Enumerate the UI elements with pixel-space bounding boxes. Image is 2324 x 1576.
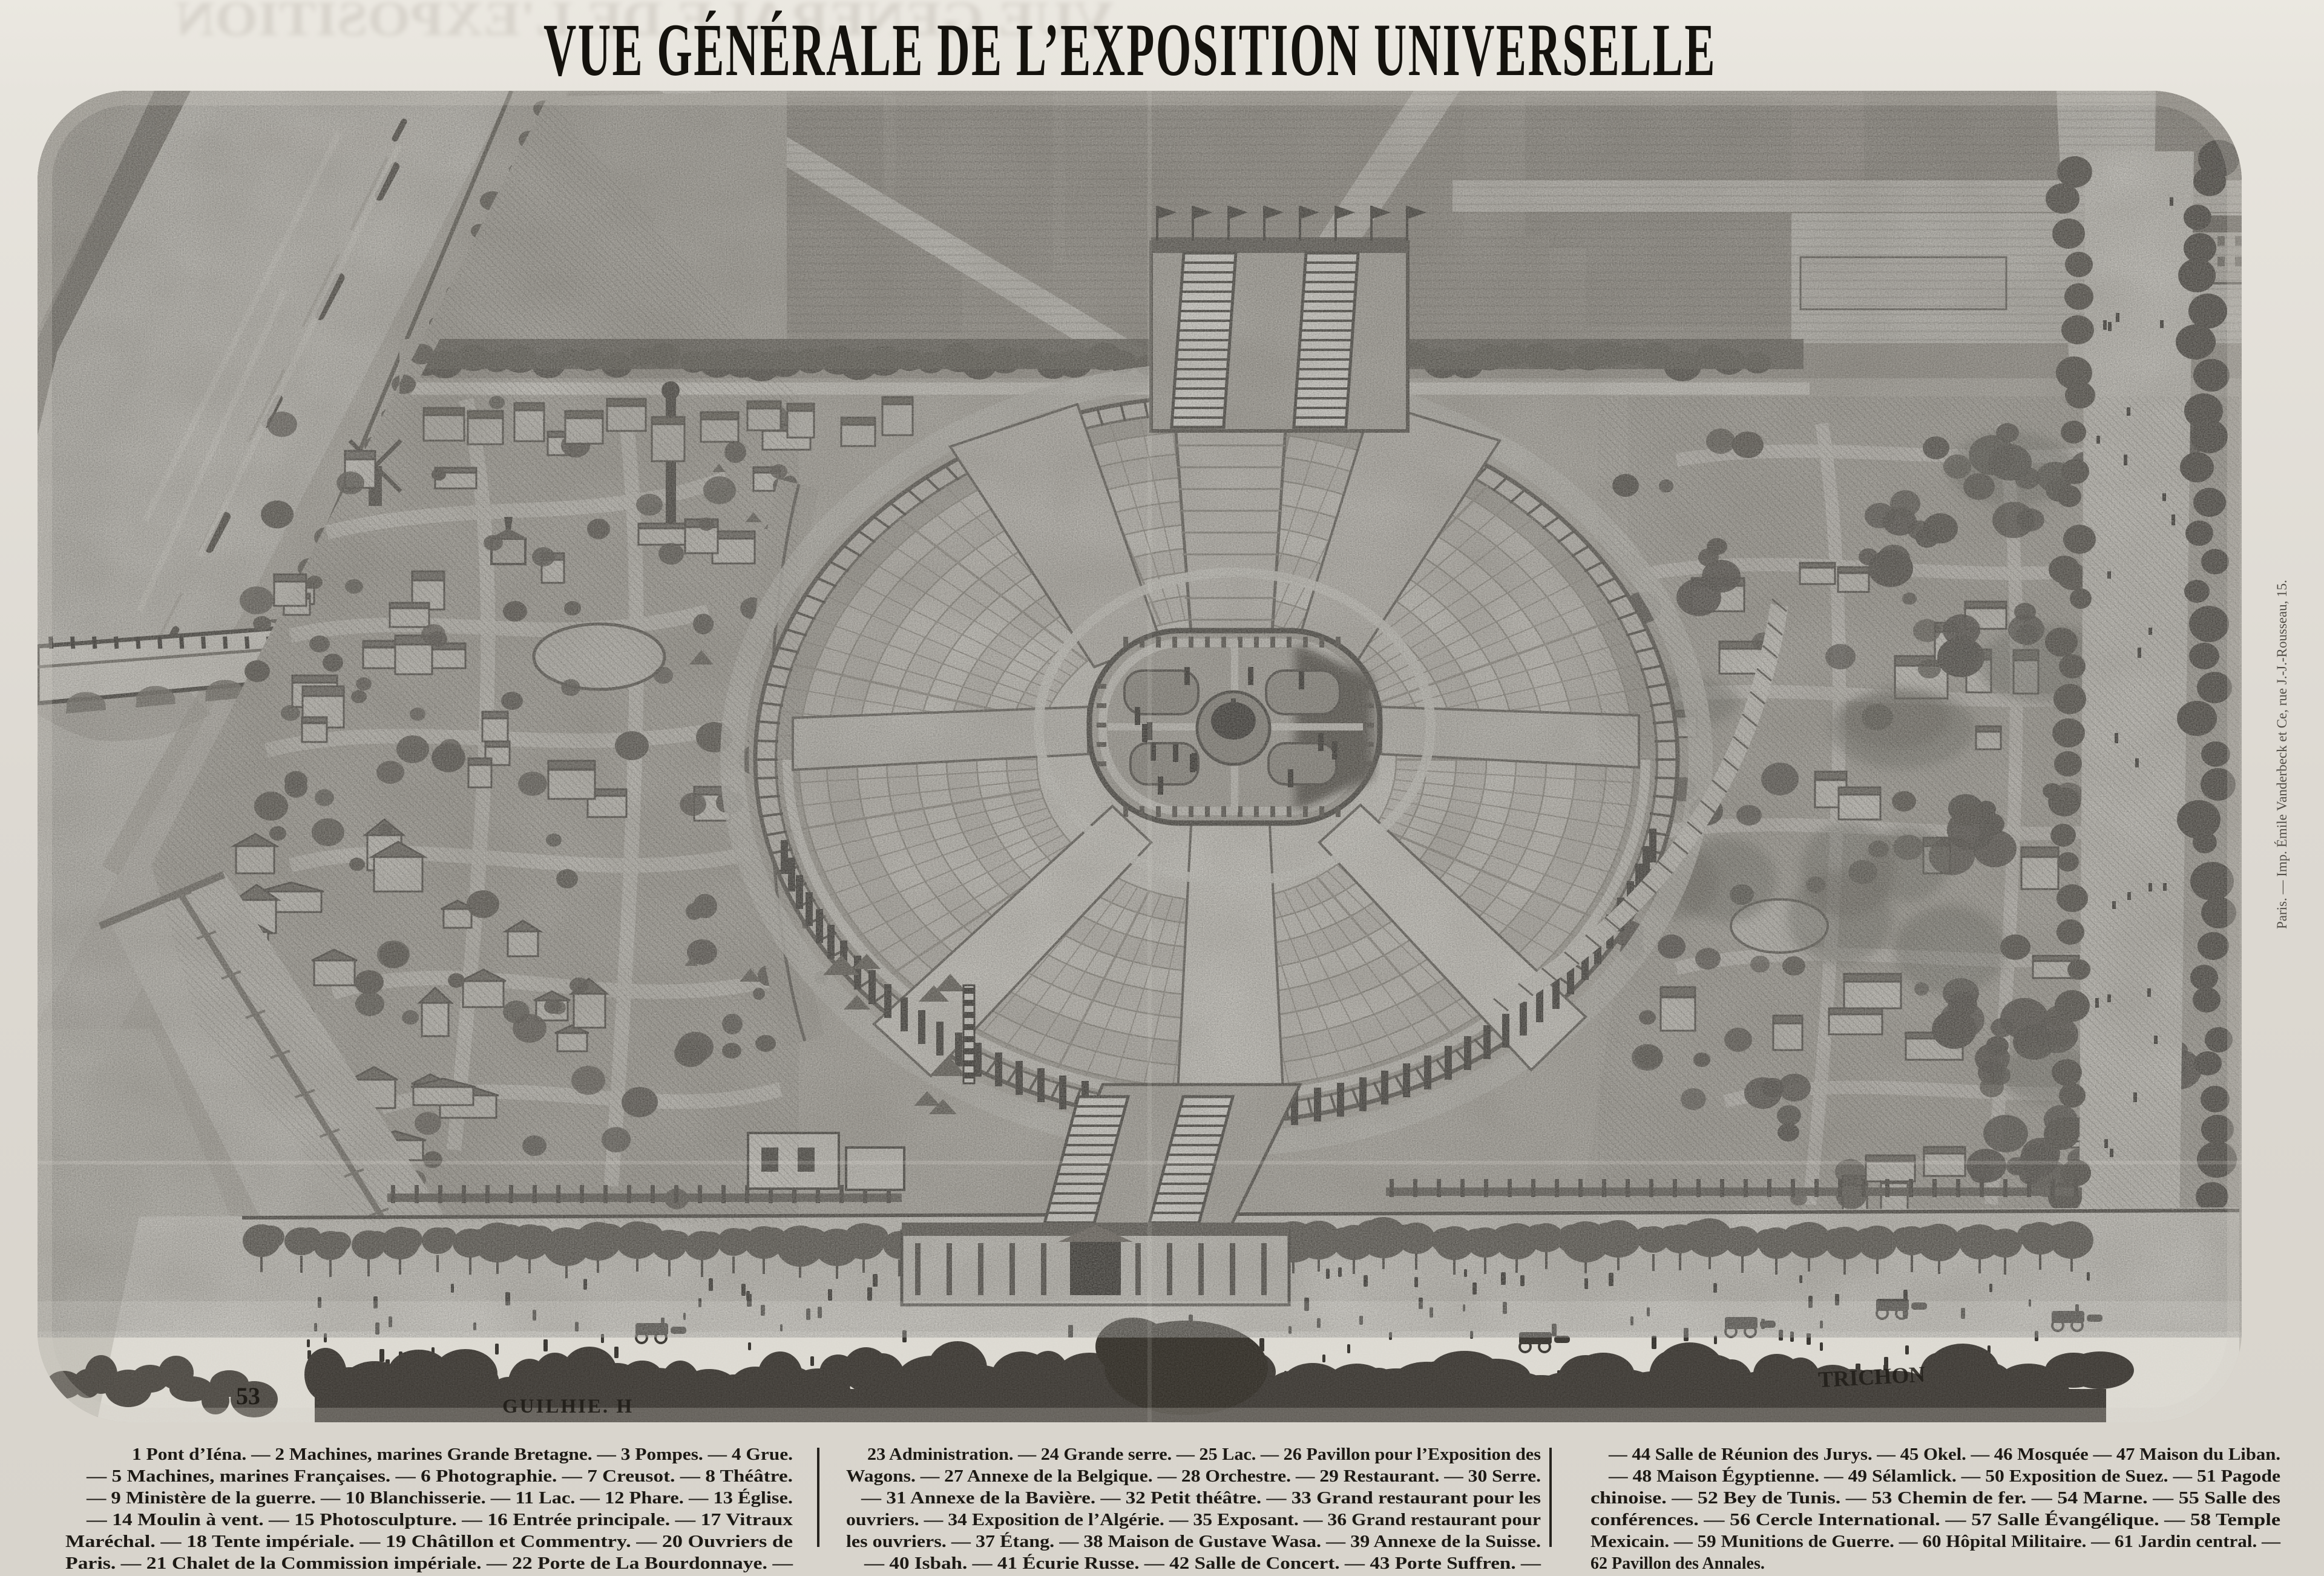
svg-text:— 40 Isbah. — 41 Écurie Ru: — 40 Isbah. — 41 Écurie Russe. — 42 Sall… — [864, 1554, 1541, 1573]
svg-text:Mexicain. — 59 Munitions de: Mexicain. — 59 Munitions de Guerre. — 60… — [1590, 1532, 2281, 1551]
svg-text:ouvriers. — 34 Exposition de: ouvriers. — 34 Exposition de l’Algérie. … — [846, 1511, 1541, 1529]
svg-text:62 Pavillon des Annales.: 62 Pavillon des Annales. — [1590, 1554, 1765, 1573]
svg-text:53: 53 — [236, 1382, 260, 1410]
svg-text:— 9 Ministère de la guerre.: — 9 Ministère de la guerre. — 10 Blanchi… — [86, 1489, 793, 1508]
svg-text:— 14 Moulin à vent. — 15 Pho: — 14 Moulin à vent. — 15 Photosculpture.… — [86, 1511, 793, 1529]
svg-text:les ouvriers. — 37 Étang. —: les ouvriers. — 37 Étang. — 38 Maison de… — [846, 1532, 1541, 1551]
svg-text:Paris. — Imp. Émile Vanderbeck: Paris. — Imp. Émile Vanderbeck et Ce, ru… — [2274, 580, 2290, 929]
svg-text:— 31 Annexe de la Bavière. —: — 31 Annexe de la Bavière. — 32 Petit th… — [861, 1489, 1541, 1508]
svg-text:conférences. — 56 Cercle Int: conférences. — 56 Cercle International. … — [1590, 1511, 2280, 1529]
svg-text:— 44 Salle de Réunion des Ju: — 44 Salle de Réunion des Jurys. — 45 Ok… — [1608, 1445, 2280, 1464]
svg-text:— 48 Maison Égyptienne. — 4: — 48 Maison Égyptienne. — 49 Sélamlick. … — [1608, 1467, 2280, 1486]
svg-text:VUE GÉNÉRALE DE L’EXPOSITION U: VUE GÉNÉRALE DE L’EXPOSITION UNIVERSELLE — [543, 8, 1716, 91]
svg-text:1 Pont d’Iéna. — 2 Machines: 1 Pont d’Iéna. — 2 Machines, marines Gra… — [132, 1445, 793, 1464]
svg-text:chinoise. — 52 Bey de Tunis.: chinoise. — 52 Bey de Tunis. — 53 Chemin… — [1590, 1489, 2280, 1508]
svg-text:23 Administration. — 24 Gra: 23 Administration. — 24 Grande serre. — … — [867, 1445, 1541, 1464]
svg-text:Maréchal. — 18 Tente impéria: Maréchal. — 18 Tente impériale. — 19 Châ… — [65, 1532, 793, 1551]
svg-text:Paris. — 21 Chalet de la Com: Paris. — 21 Chalet de la Commission impé… — [65, 1554, 793, 1573]
svg-text:GUILHIE. H: GUILHIE. H — [502, 1396, 634, 1417]
svg-text:Wagons. — 27 Annexe de la Be: Wagons. — 27 Annexe de la Belgique. — 28… — [846, 1467, 1541, 1486]
svg-text:— 5 Machines, marines França: — 5 Machines, marines Françaises. — 6 Ph… — [86, 1467, 793, 1486]
